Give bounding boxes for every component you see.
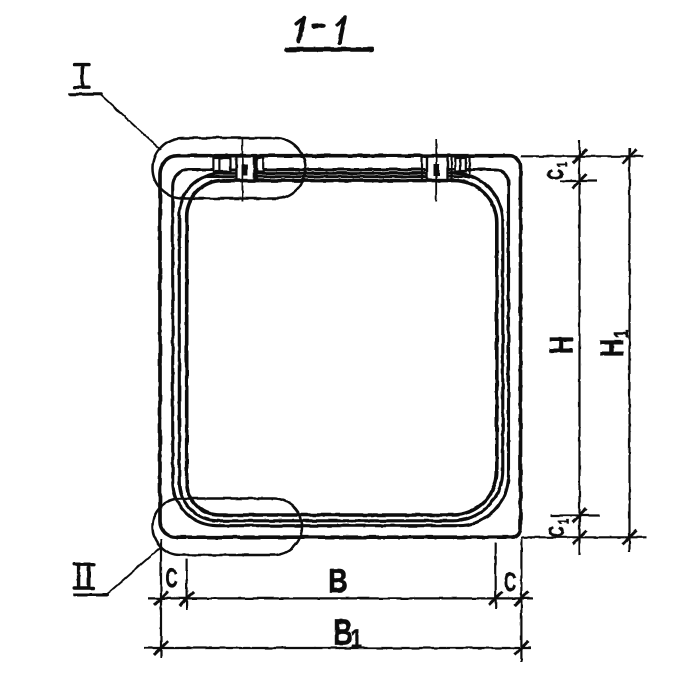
svg-text:1: 1: [553, 162, 571, 168]
svg-text:C: C: [504, 567, 516, 597]
svg-text:C: C: [543, 169, 568, 180]
svg-text:1: 1: [554, 519, 572, 525]
svg-text:C: C: [165, 563, 177, 593]
svg-text:B: B: [328, 564, 348, 600]
svg-text:1: 1: [610, 330, 633, 338]
svg-text:C: C: [544, 526, 569, 537]
svg-text:B: B: [333, 612, 352, 653]
svg-text:1: 1: [351, 624, 362, 653]
svg-text:H: H: [545, 336, 581, 354]
svg-text:H: H: [595, 339, 631, 357]
